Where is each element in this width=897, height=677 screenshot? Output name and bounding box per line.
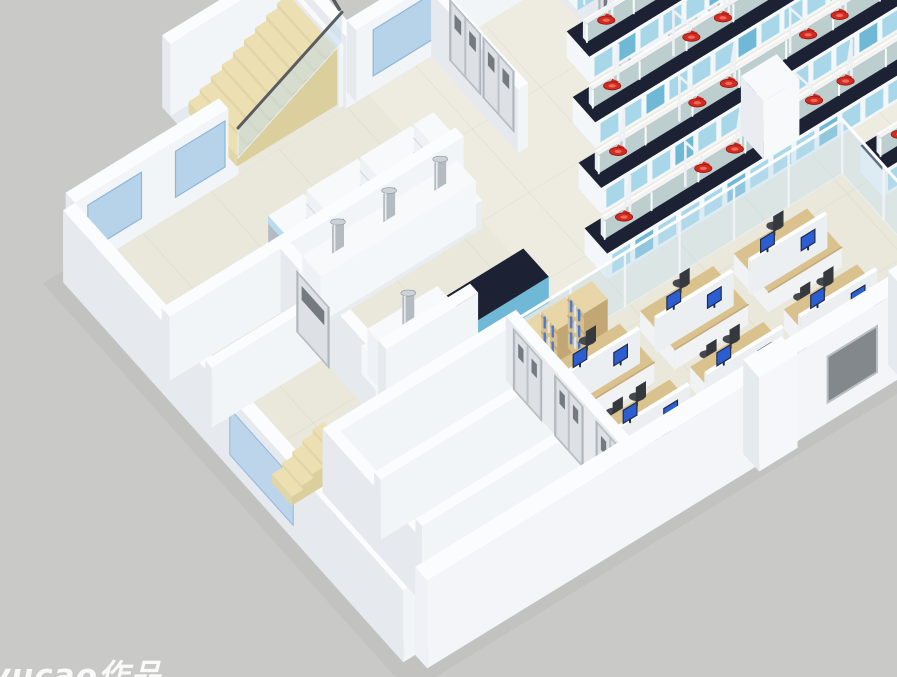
watermark: yucao作品 (0, 658, 163, 677)
floorplan-scene: yucao作品 (0, 0, 897, 677)
isometric-lab-render: yucao作品 (0, 0, 897, 677)
scene-layers (43, 0, 897, 677)
se-pilaster (743, 336, 797, 471)
